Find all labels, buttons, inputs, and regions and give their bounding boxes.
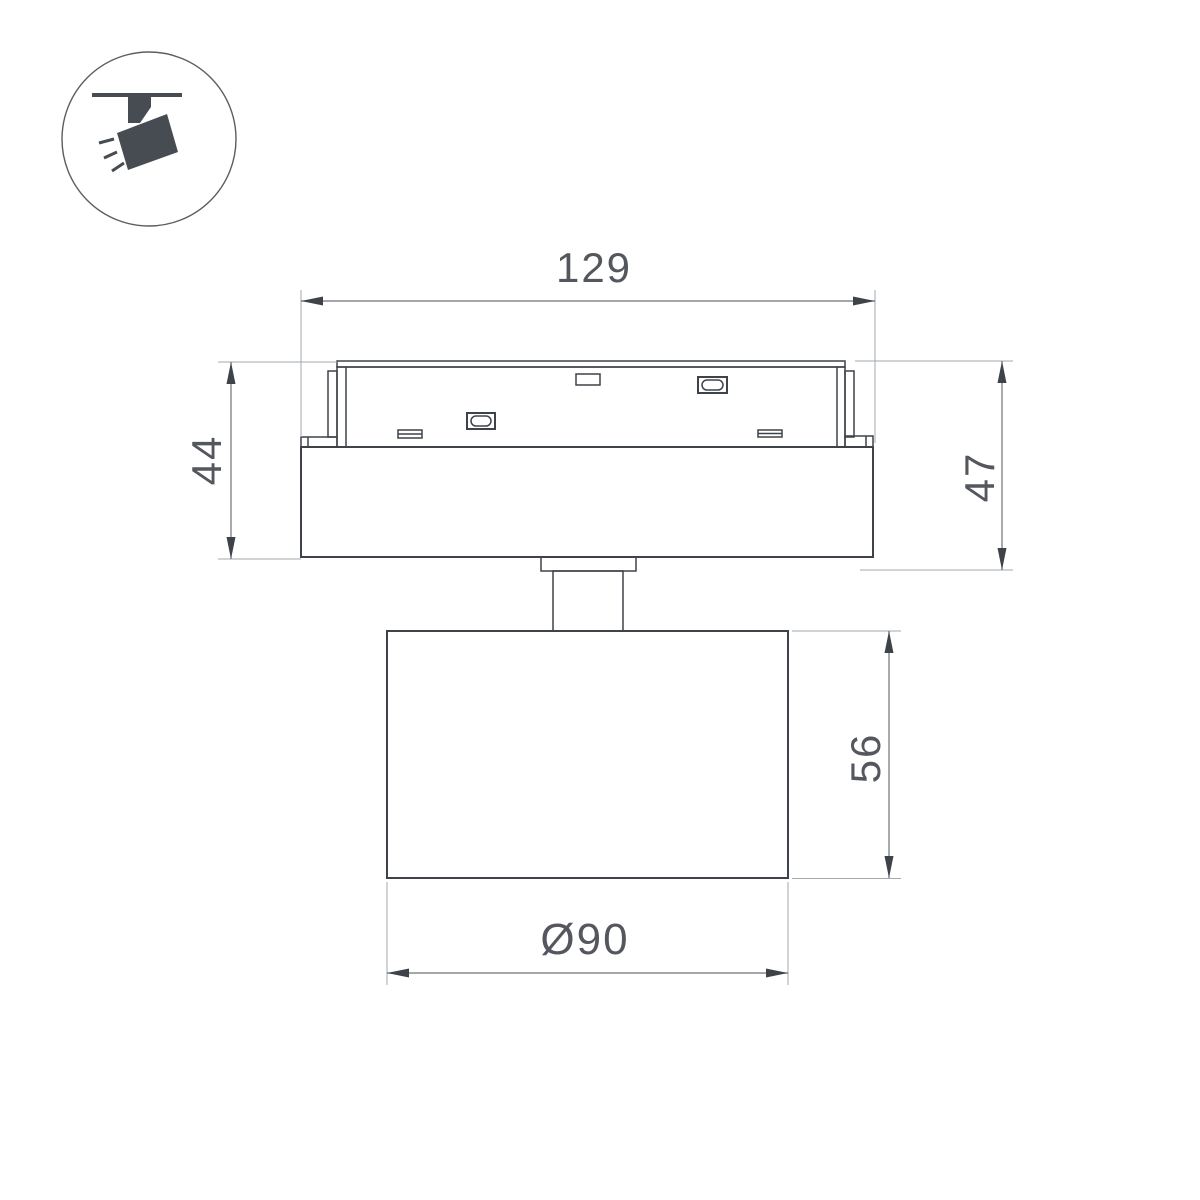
arrow-left: [301, 297, 323, 306]
arrow-up: [885, 631, 894, 653]
adapter-box: [337, 367, 845, 447]
dimension-drawing-canvas: 129 44 47 56 Ø90: [0, 0, 1200, 1200]
adapter-side-tab-left: [328, 371, 337, 437]
module-body-outline: [301, 447, 873, 557]
track-spotlight-icon: [62, 52, 236, 226]
arrow-right: [853, 297, 875, 306]
adapter-slot-rounded-inner: [471, 416, 491, 426]
icon-lamp-head: [117, 114, 178, 170]
dim-label-base-total-height: 47: [956, 452, 1004, 503]
icon-light-ray: [104, 152, 117, 158]
module-body: [301, 436, 873, 557]
icon-light-ray: [112, 163, 124, 171]
dim-label-head-height: 56: [842, 733, 890, 784]
arrow-up: [998, 361, 1007, 383]
arrow-down: [885, 856, 894, 878]
suspension: [541, 557, 636, 631]
dimension-lines: [227, 297, 1007, 978]
adapter-top-plate: [337, 361, 845, 367]
mounting-collar: [541, 557, 636, 571]
track-adapter: [328, 361, 854, 447]
arrow-left: [387, 969, 409, 978]
icon-light-ray: [99, 139, 114, 143]
arrow-right: [766, 969, 788, 978]
body-left-lip: [301, 437, 337, 447]
icon-stem: [128, 95, 151, 123]
swivel-stem: [553, 571, 623, 631]
adapter-side-tab-right: [845, 371, 854, 437]
adapter-slot-flat: [576, 374, 600, 385]
dim-label-adapter-body-height: 44: [183, 435, 231, 486]
lamp-head-outline: [387, 631, 788, 878]
dim-label-head-diameter: Ø90: [540, 915, 629, 965]
arrow-up: [227, 362, 236, 384]
drawing-linework: [0, 0, 1200, 1200]
arrow-down: [227, 537, 236, 559]
arrow-down: [998, 548, 1007, 570]
adapter-slot-rounded-inner: [702, 380, 723, 390]
lamp-head: [387, 631, 788, 878]
dim-label-overall-width: 129: [556, 244, 632, 292]
